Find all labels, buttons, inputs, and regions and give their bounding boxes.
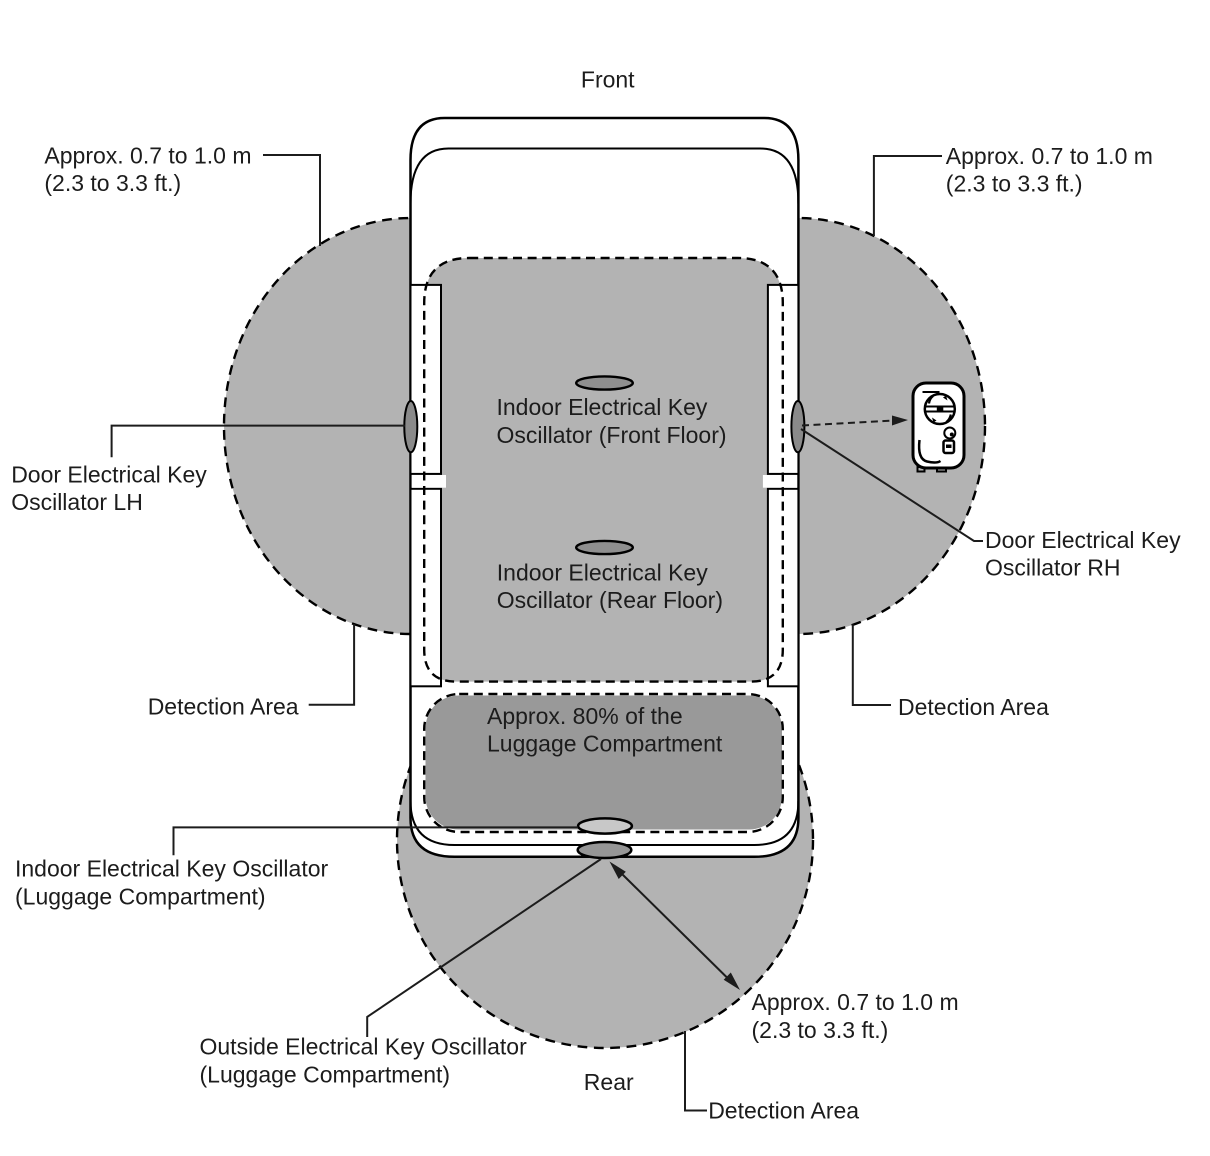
svg-text:Rear: Rear <box>584 1069 634 1095</box>
svg-text:(2.3 to 3.3 ft.): (2.3 to 3.3 ft.) <box>752 1017 889 1043</box>
svg-text:Outside Electrical Key Oscilla: Outside Electrical Key Oscillator <box>200 1034 528 1060</box>
svg-text:(2.3 to 3.3 ft.): (2.3 to 3.3 ft.) <box>44 170 181 196</box>
svg-text:Indoor Electrical Key: Indoor Electrical Key <box>497 560 708 586</box>
svg-text:Oscillator RH: Oscillator RH <box>985 555 1120 581</box>
svg-text:(Luggage Compartment): (Luggage Compartment) <box>15 884 266 910</box>
svg-text:Approx. 0.7 to 1.0 m: Approx. 0.7 to 1.0 m <box>752 989 959 1015</box>
svg-text:Oscillator (Rear Floor): Oscillator (Rear Floor) <box>497 587 723 613</box>
svg-text:Approx. 0.7 to 1.0 m: Approx. 0.7 to 1.0 m <box>44 142 251 168</box>
svg-text:(2.3 to 3.3 ft.): (2.3 to 3.3 ft.) <box>946 171 1083 197</box>
svg-text:Indoor Electrical Key: Indoor Electrical Key <box>497 394 708 420</box>
svg-text:Door Electrical Key: Door Electrical Key <box>985 527 1181 553</box>
svg-text:Detection Area: Detection Area <box>708 1098 859 1124</box>
svg-text:(Luggage Compartment): (Luggage Compartment) <box>200 1062 451 1088</box>
svg-text:Approx. 0.7 to 1.0 m: Approx. 0.7 to 1.0 m <box>946 143 1153 169</box>
svg-text:Indoor Electrical Key Oscillat: Indoor Electrical Key Oscillator <box>15 856 329 882</box>
svg-text:Oscillator (Front Floor): Oscillator (Front Floor) <box>497 422 727 448</box>
svg-text:Front: Front <box>581 67 635 93</box>
svg-text:Detection Area: Detection Area <box>898 694 1049 720</box>
svg-text:Detection Area: Detection Area <box>148 694 299 720</box>
svg-text:Approx. 80% of the: Approx. 80% of the <box>487 703 683 729</box>
svg-text:Oscillator LH: Oscillator LH <box>11 489 143 515</box>
svg-text:Door Electrical Key: Door Electrical Key <box>11 462 207 488</box>
svg-text:Luggage Compartment: Luggage Compartment <box>487 731 723 757</box>
